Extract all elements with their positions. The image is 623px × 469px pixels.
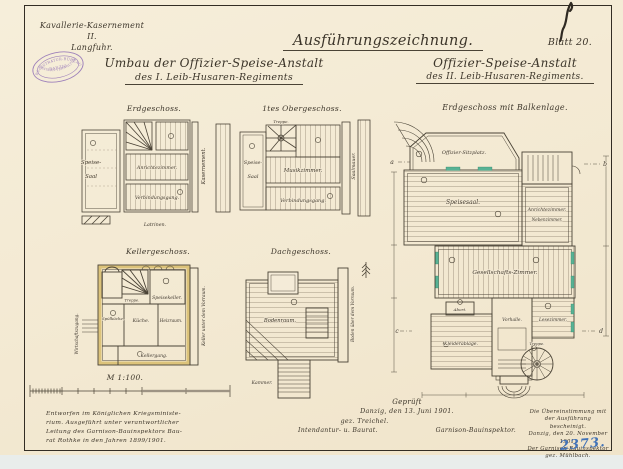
balkenlage-treppe-label: Treppe. [530, 341, 545, 346]
certification-line5: gez. Mühlbach. [526, 453, 610, 460]
erdgeschoss-speisesaal-label-2: Saal [85, 174, 97, 180]
balkenlage-abort-label: Abort. [453, 307, 467, 312]
obergeschoss-verbindungsgang-label: Verbindungsgang. [280, 198, 327, 204]
right-project-title: Offizier-Speise-Anstalt des II. Leib-Hus… [402, 56, 608, 84]
plan-title-balkenlage: Erdgeschoss mit Balkenlage. [428, 103, 582, 112]
obergeschoss-speisesaal-label-2: Saal [248, 174, 259, 180]
section-marker-c: c [395, 328, 399, 335]
scale-label: M 1:100. [90, 373, 160, 382]
right-title-line1: Offizier-Speise-Anstalt [402, 56, 608, 70]
design-note-line1: Entworfen im Königlichen Kriegsministe- [46, 410, 188, 419]
certification-line2: der Ausführung bescheinigt. [526, 416, 610, 431]
right-title-line2: des II. Leib-Husaren-Regiments. [402, 72, 608, 84]
plan-title-erdgeschoss: Erdgeschoss. [112, 104, 196, 113]
plan-erdgeschoss-balkenlage: Offizier-Sitzplatz. Speisesaal. Anrichte… [386, 114, 612, 406]
drawing-sheet: Kavallerie-Kasernement II. Langfuhr. REG… [0, 0, 623, 469]
approval-role-left: Intendantur- u. Baurat. [298, 427, 378, 434]
left-project-title: Umbau der Offizier-Speise-Anstalt des I.… [88, 56, 340, 85]
scale-bar-filled-segment [142, 390, 230, 392]
design-note-line3: Leitung des Garnison-Bauinspektors Bau- [46, 428, 188, 437]
approval-signature-left: gez. Treichel. [340, 417, 388, 425]
plan-title-kellergeschoss: Kellergeschoss. [110, 247, 206, 256]
plan-kellergeschoss: Treppe. Speisekeller. Spülküche. Küche. … [74, 258, 242, 374]
design-note: Entworfen im Königlichen Kriegsministe- … [46, 410, 188, 445]
balkenlage-nebenzimmer-label: Nebenzimmer. [531, 217, 563, 222]
section-marker-a: a [390, 159, 394, 166]
balkenlage-vorhalle-label: Vorhalle. [502, 318, 522, 323]
approval-role-right: Garnison-Bauinspektor. [436, 427, 516, 434]
section-marker-b: b [603, 161, 607, 168]
erdgeschoss-walls [82, 120, 230, 224]
approval-block: Geprüft Danzig, den 13. Juni 1901. gez. … [298, 398, 516, 434]
main-title-text: Ausführungszeichnung. [283, 33, 483, 51]
approval-date: Danzig, den 13. Juni 1901. [298, 407, 516, 415]
kellergeschoss-kellergang-label: Kellergang. [140, 353, 168, 359]
erdgeschoss-speisesaal-label-1: Speise- [81, 160, 101, 166]
plan-dachgeschoss: Bodenraum. Kammer. Boden über dem Vorrau… [244, 260, 374, 400]
kellergeschoss-kueche-label: Küche. [132, 318, 150, 324]
plan-obergeschoss: Treppe. Speise- Saal Musikzimmer. Verbin… [238, 116, 372, 228]
plan-erdgeschoss: Speise- Saal Anrichtezimmer. Verbindungs… [78, 116, 240, 228]
erdgeschoss-latrinen-label: Latrinen. [143, 222, 167, 228]
corner-note-line1: Kavallerie-Kasernement II. [36, 21, 148, 43]
plan-title-dachgeschoss: Dachgeschoss. [248, 247, 354, 256]
kellergeschoss-wirtschaftszugang-label: Wirtschaftszugang. [74, 313, 79, 354]
balkenlage-anrichtezimmer-label: Anrichtezimmer. [527, 207, 567, 213]
dachgeschoss-bodenraum-label: Bodenraum. [263, 318, 296, 324]
kellergeschoss-treppe-label: Treppe. [125, 298, 140, 303]
obergeschoss-musikzimmer-label: Musikzimmer. [283, 168, 323, 174]
kellergeschoss-heizraum-label: Heizraum. [159, 319, 183, 324]
plan-title-obergeschoss: 1tes Obergeschoss. [254, 104, 350, 113]
certification-line1: Die Übereinstimmung mit [526, 409, 610, 416]
obergeschoss-treppe-label: Treppe. [273, 119, 288, 124]
balkenlage-speisesaal-label: Speisesaal. [446, 199, 480, 206]
obergeschoss-saalmauer-label: Saalmauer. [351, 152, 357, 180]
balkenlage-kleiderablage-label: Kleiderablage. [443, 341, 478, 347]
erdgeschoss-kasernement-label: Kasernement. [201, 147, 207, 185]
balkenlage-sitzplatz-label: Offizier-Sitzplatz. [442, 150, 487, 156]
design-note-line2: rium. Ausgeführt unter verantwortlicher [46, 419, 188, 428]
left-title-line1: Umbau der Offizier-Speise-Anstalt [88, 56, 340, 70]
approval-checked-label: Geprüft [298, 398, 516, 406]
corner-note: Kavallerie-Kasernement II. Langfuhr. [36, 21, 148, 53]
design-note-line4: rat Rothke in den Jahren 1899/1901. [46, 437, 188, 446]
left-title-line2: des I. Leib-Husaren-Regiments [88, 72, 340, 85]
erdgeschoss-anrichtezimmer-label: Anrichtezimmer. [136, 165, 178, 171]
erdgeschoss-verbindungsgang-label: Verbindungsgang. [135, 195, 180, 201]
main-title: Ausführungszeichnung. [283, 33, 463, 51]
kellergeschoss-keller-vorraum-label: Keller unter dem Vorraum. [202, 286, 207, 347]
kellergeschoss-speisekeller-label: Speisekeller. [152, 295, 182, 301]
feather-mark [362, 262, 370, 278]
section-marker-d: d [599, 328, 603, 335]
dachgeschoss-kammer-label: Kammer. [251, 380, 273, 386]
balkenlage-lesezimmer-label: Lesezimmer. [538, 318, 567, 323]
dachgeschoss-boden-vorraum-label: Boden über dem Vorraum. [350, 286, 355, 343]
obergeschoss-speisesaal-label-1: Speise- [244, 160, 263, 166]
pen-stroke-mark [550, 1, 578, 43]
kellergeschoss-spuelkueche-label: Spülküche. [102, 316, 124, 321]
balkenlage-gesellschaftszimmer-label: Gesellschafts-Zimmer. [472, 270, 537, 276]
scale-bar [28, 382, 236, 398]
balkenlage-walls [394, 122, 580, 398]
